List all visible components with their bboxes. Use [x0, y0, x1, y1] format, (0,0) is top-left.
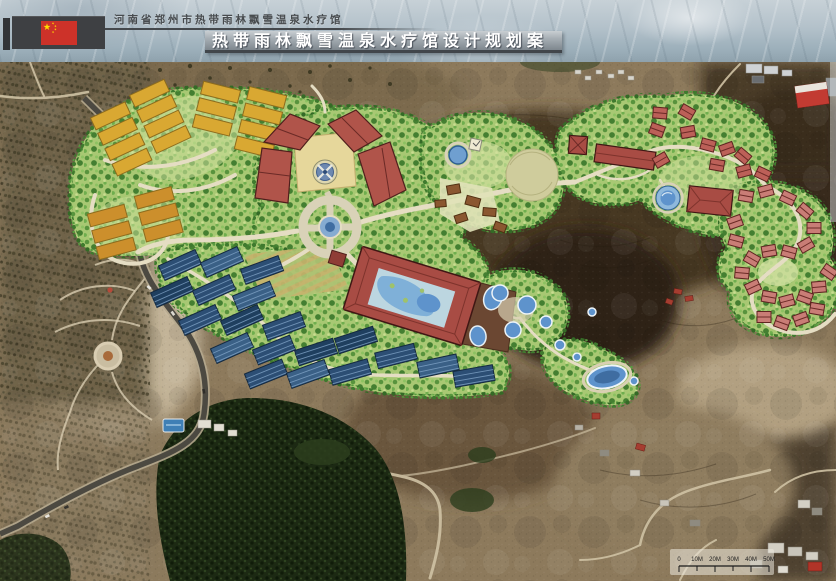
cross-roof-building: [687, 186, 733, 216]
map-area: 0 10M 20M 30M 40M 50M: [0, 62, 836, 581]
flag-block: [12, 16, 105, 49]
header-accent-notch: [3, 18, 10, 50]
china-flag-icon: [38, 21, 80, 45]
main-title: 热带雨林飘雪温泉水疗馆设计规划案: [205, 31, 562, 50]
red-roof-building-ne: [795, 82, 830, 108]
existing-pool-facility: [163, 419, 184, 432]
region-subtitle: 河南省郑州市热带雨林飘雪温泉水疗馆: [114, 13, 344, 27]
scale-label: 50M: [763, 557, 775, 563]
subtitle-underline: [105, 28, 437, 30]
scale-label: 40M: [745, 557, 757, 563]
main-title-band: 热带雨林飘雪温泉水疗馆设计规划案: [205, 31, 562, 53]
construction-circle-center: [103, 351, 113, 361]
compass-fountain: [313, 160, 337, 184]
red-marker-dot: [107, 287, 112, 292]
small-round-pool: [449, 146, 467, 164]
plan-poster: 河南省郑州市热带雨林飘雪温泉水疗馆 热带雨林飘雪温泉水疗馆设计规划案: [0, 0, 836, 581]
roundabout: [303, 200, 357, 254]
cross-pavilion: [568, 135, 587, 154]
scale-label: 10M: [691, 557, 703, 563]
lawn-mound: [506, 149, 558, 201]
scale-label: 20M: [709, 557, 721, 563]
site-plan-map: 0 10M 20M 30M 40M 50M: [0, 62, 836, 581]
header-bar: 河南省郑州市热带雨林飘雪温泉水疗馆 热带雨林飘雪温泉水疗馆设计规划案: [0, 0, 836, 64]
scale-label: 30M: [727, 557, 739, 563]
scale-bar: 0 10M 20M 30M 40M 50M: [670, 549, 775, 575]
edge-artifact: [830, 62, 836, 222]
sign-board: [469, 138, 482, 151]
